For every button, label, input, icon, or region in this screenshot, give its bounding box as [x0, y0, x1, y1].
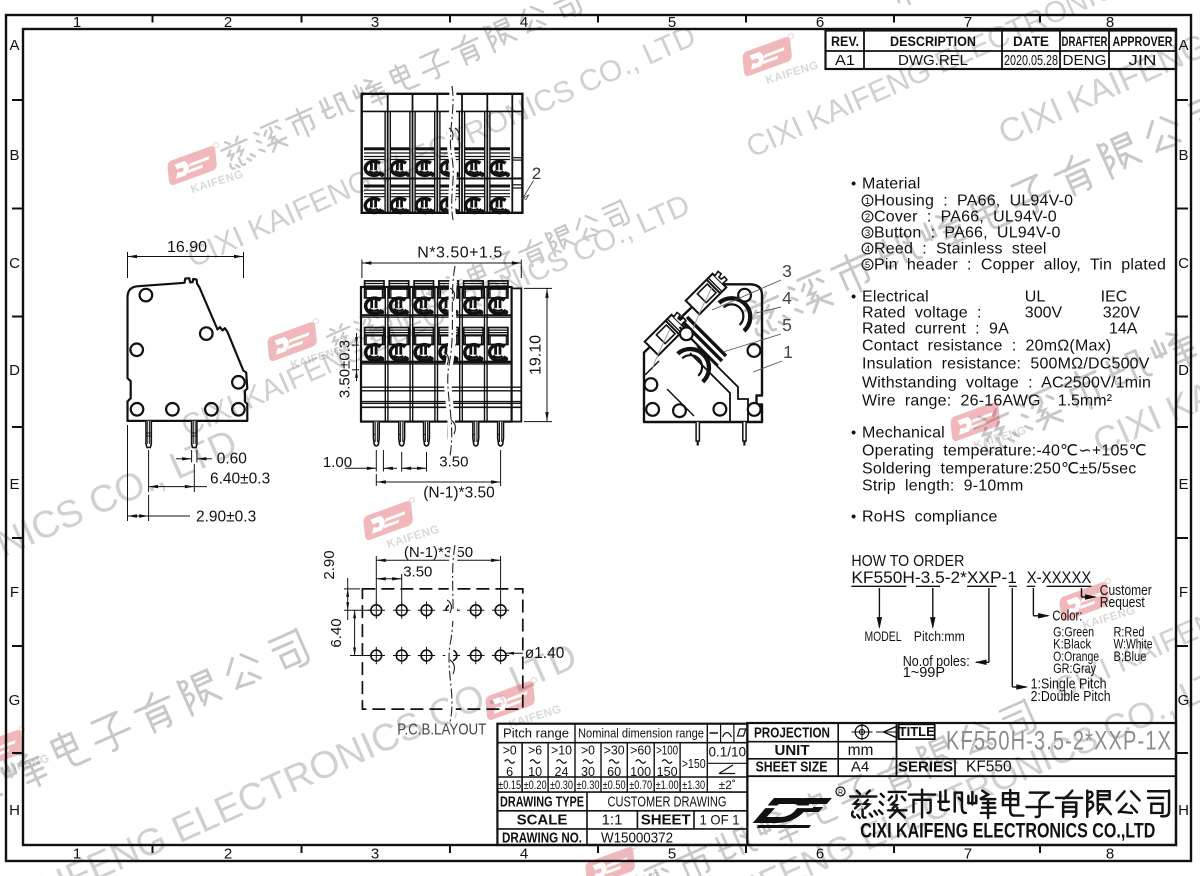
svg-text:Rated current : 9A: Rated current : 9A — [862, 321, 1009, 338]
svg-text:3.50: 3.50 — [439, 454, 468, 471]
svg-text:D: D — [9, 362, 20, 379]
svg-text:3.50: 3.50 — [403, 564, 432, 581]
svg-text:Withstanding voltage : AC2500V: Withstanding voltage : AC2500V/1min — [862, 375, 1151, 392]
svg-text:E: E — [9, 476, 19, 493]
svg-text:PROJECTION: PROJECTION — [754, 725, 830, 742]
svg-text:2.90±0.3: 2.90±0.3 — [196, 509, 256, 526]
svg-text:JIN: JIN — [1129, 52, 1157, 69]
svg-text:7: 7 — [964, 846, 972, 863]
svg-text:5: 5 — [668, 846, 676, 863]
svg-text:•: • — [851, 425, 856, 442]
svg-text:Cover : PA66, UL94V-0: Cover : PA66, UL94V-0 — [874, 209, 1057, 226]
svg-text:Pitch:mm: Pitch:mm — [914, 628, 965, 644]
svg-text:CIXI KAIFENG ELECTRONICS CO.,L: CIXI KAIFENG ELECTRONICS CO.,LTD — [860, 819, 1155, 843]
svg-text:3: 3 — [371, 846, 379, 863]
svg-text:UNIT: UNIT — [775, 742, 810, 759]
svg-text:Button : PA66, UL94V-0: Button : PA66, UL94V-0 — [874, 225, 1061, 242]
svg-text:D: D — [1178, 362, 1189, 379]
svg-text:5: 5 — [668, 14, 676, 31]
svg-text:3.50±0.3: 3.50±0.3 — [337, 340, 354, 398]
svg-text:CIXI KAIFENG ELECTRONICS CO.,: CIXI KAIFENG ELECTRONICS CO., LTD — [0, 635, 583, 876]
svg-text:10: 10 — [528, 765, 542, 779]
svg-text:GR:Gray: GR:Gray — [1053, 660, 1096, 676]
svg-text:1: 1 — [73, 846, 81, 863]
svg-text:19.10: 19.10 — [528, 335, 545, 375]
svg-text:ø1.40: ø1.40 — [525, 645, 565, 662]
svg-text:1.00: 1.00 — [323, 454, 352, 471]
svg-text:X-XXXXX: X-XXXXX — [1027, 568, 1092, 587]
svg-text:•: • — [851, 289, 856, 306]
svg-text:0.60: 0.60 — [217, 451, 248, 468]
svg-text:A: A — [1178, 37, 1188, 54]
svg-text:H: H — [1178, 802, 1189, 819]
svg-text:W15000372: W15000372 — [601, 830, 673, 847]
svg-text:5: 5 — [782, 315, 792, 335]
svg-text:A4: A4 — [851, 758, 869, 775]
svg-text:mm: mm — [848, 742, 874, 759]
svg-text:H: H — [9, 802, 20, 819]
svg-text:2: 2 — [865, 212, 870, 223]
svg-text:Nominal dimension range: Nominal dimension range — [578, 726, 704, 741]
svg-text:6.40: 6.40 — [328, 618, 345, 647]
svg-text:B:Blue: B:Blue — [1114, 648, 1147, 664]
svg-text:2020.05.28: 2020.05.28 — [1004, 52, 1058, 69]
svg-text:MODEL: MODEL — [865, 628, 902, 644]
svg-text:>100: >100 — [656, 744, 678, 758]
svg-text:2.90: 2.90 — [321, 550, 338, 579]
svg-text:>60: >60 — [630, 744, 651, 758]
svg-text:A: A — [9, 37, 19, 54]
svg-text:DRAWING NO.: DRAWING NO. — [502, 830, 582, 847]
svg-text:Soldering temperature:250℃±5/5: Soldering temperature:250℃±5/5sec — [862, 461, 1136, 478]
svg-text:4: 4 — [865, 244, 870, 255]
svg-text:•: • — [851, 509, 856, 526]
svg-text:4: 4 — [520, 14, 528, 31]
svg-text:KF550: KF550 — [966, 758, 1012, 775]
svg-text:2: 2 — [532, 164, 541, 183]
svg-text:F: F — [10, 584, 19, 601]
svg-text:Material: Material — [862, 176, 921, 193]
svg-text:E: E — [1178, 476, 1188, 493]
svg-text:14A: 14A — [1109, 321, 1138, 338]
svg-text:R: R — [838, 789, 843, 796]
svg-text:4: 4 — [782, 288, 792, 308]
svg-text:Mechanical: Mechanical — [862, 425, 945, 442]
svg-text:2: 2 — [224, 846, 232, 863]
svg-text:±1.00: ±1.00 — [656, 780, 679, 792]
svg-text:2:Double Pitch: 2:Double Pitch — [1031, 688, 1111, 705]
svg-text:±1.30: ±1.30 — [682, 780, 705, 792]
svg-text:±0.30: ±0.30 — [550, 780, 573, 792]
svg-text:24: 24 — [555, 765, 569, 779]
svg-text:UL: UL — [1025, 289, 1046, 306]
svg-text:30: 30 — [581, 765, 595, 779]
svg-text:A1: A1 — [835, 52, 855, 69]
svg-text:1.5mm²: 1.5mm² — [1058, 393, 1113, 410]
svg-text:3: 3 — [371, 14, 379, 31]
svg-text:>6: >6 — [528, 744, 542, 758]
svg-text:>0: >0 — [503, 744, 517, 758]
svg-text:KF550H-3.5-2*XXP-1: KF550H-3.5-2*XXP-1 — [851, 568, 1017, 587]
svg-text:IEC: IEC — [1101, 289, 1128, 306]
svg-text:DRAFTER: DRAFTER — [1062, 34, 1108, 49]
svg-text:16.90: 16.90 — [167, 239, 207, 256]
svg-text:>10: >10 — [551, 744, 572, 758]
svg-text:300V: 300V — [1025, 305, 1063, 322]
svg-text:DRAWING TYPE: DRAWING TYPE — [500, 794, 584, 811]
svg-text:7: 7 — [964, 14, 972, 31]
svg-text:6: 6 — [816, 14, 824, 31]
svg-text:REV.: REV. — [831, 34, 859, 49]
svg-text:60: 60 — [607, 765, 621, 779]
svg-text:>0: >0 — [581, 744, 595, 758]
svg-text:±0.30: ±0.30 — [577, 780, 600, 792]
svg-text:1: 1 — [865, 196, 870, 207]
svg-text:SERIES: SERIES — [898, 759, 953, 776]
svg-text:F: F — [1179, 584, 1188, 601]
svg-text:Request: Request — [1100, 595, 1145, 611]
svg-text:±2˚: ±2˚ — [719, 778, 736, 792]
svg-text:Electrical: Electrical — [862, 289, 929, 306]
svg-text:±0.20: ±0.20 — [524, 780, 547, 792]
svg-text:Insulation resistance: 500MΩ/D: Insulation resistance: 500MΩ/DC500V — [862, 356, 1150, 373]
svg-text:±0.70: ±0.70 — [629, 780, 652, 792]
svg-text:Operating temperature:-40℃∽+10: Operating temperature:-40℃∽+105℃ — [862, 443, 1147, 460]
svg-text:DENG: DENG — [1063, 52, 1107, 69]
svg-text:0.1/10: 0.1/10 — [709, 745, 747, 760]
svg-text:1: 1 — [73, 14, 81, 31]
svg-text:CUSTOMER DRAWING: CUSTOMER DRAWING — [608, 794, 727, 811]
svg-text:G: G — [1178, 692, 1190, 709]
svg-text:150: 150 — [657, 765, 678, 779]
svg-text:RoHS compliance: RoHS compliance — [862, 509, 998, 526]
svg-text:(N-1)*3.50: (N-1)*3.50 — [404, 544, 473, 561]
svg-text:(N-1)*3.50: (N-1)*3.50 — [423, 485, 495, 502]
svg-text:Rated voltage :: Rated voltage : — [862, 305, 982, 322]
svg-text:DATE: DATE — [1013, 34, 1049, 49]
svg-text:±0.50: ±0.50 — [603, 780, 626, 792]
svg-text:Pin header : Copper alloy, Tin: Pin header : Copper alloy, Tin plated — [874, 257, 1166, 274]
svg-text:1: 1 — [783, 342, 793, 362]
svg-text:±0.15: ±0.15 — [498, 780, 521, 792]
svg-text:2: 2 — [224, 14, 232, 31]
svg-text:1~99P: 1~99P — [903, 665, 945, 681]
svg-text:>30: >30 — [604, 744, 625, 758]
svg-text:1 OF 1: 1 OF 1 — [700, 811, 740, 827]
svg-text:C: C — [9, 255, 20, 272]
svg-text:1:1: 1:1 — [602, 812, 623, 829]
svg-text:C: C — [1178, 255, 1189, 272]
svg-text:SHEET: SHEET — [641, 812, 691, 829]
svg-text:100: 100 — [630, 765, 651, 779]
svg-text:B: B — [1178, 147, 1188, 164]
svg-text:Wire range: 26-16AWG: Wire range: 26-16AWG — [862, 393, 1041, 410]
svg-text:3: 3 — [865, 228, 870, 239]
svg-text:DWG.REL: DWG.REL — [898, 52, 968, 69]
svg-text:•: • — [851, 176, 856, 193]
svg-text:P.C.B.LAYOUT: P.C.B.LAYOUT — [397, 722, 486, 739]
svg-text:>150: >150 — [682, 757, 706, 771]
svg-text:SHEET SIZE: SHEET SIZE — [756, 758, 828, 775]
svg-text:KF550H-3.5-2*XXP-1X: KF550H-3.5-2*XXP-1X — [946, 726, 1172, 756]
svg-text:Pitch range: Pitch range — [503, 726, 569, 741]
svg-text:5: 5 — [865, 260, 870, 271]
svg-text:320V: 320V — [1103, 305, 1141, 322]
svg-text:8: 8 — [1106, 14, 1114, 31]
svg-text:8: 8 — [1106, 846, 1114, 863]
svg-text:B: B — [9, 147, 19, 164]
svg-text:N*3.50+1.5: N*3.50+1.5 — [417, 245, 503, 262]
svg-text:TITLE: TITLE — [899, 724, 935, 739]
svg-text:4: 4 — [520, 846, 528, 863]
svg-text:Color:: Color: — [1052, 608, 1082, 625]
svg-text:6: 6 — [506, 765, 513, 779]
svg-text:6.40±0.3: 6.40±0.3 — [210, 471, 270, 488]
svg-text:APPROVER: APPROVER — [1113, 34, 1173, 49]
svg-text:G: G — [9, 692, 21, 709]
svg-text:DESCRIPTION: DESCRIPTION — [890, 34, 976, 49]
svg-text:SCALE: SCALE — [517, 812, 568, 829]
svg-text:Strip length: 9-10mm: Strip length: 9-10mm — [862, 478, 1024, 495]
svg-text:Reed : Stainless steel: Reed : Stainless steel — [874, 241, 1047, 258]
svg-text:6: 6 — [816, 846, 824, 863]
svg-text:Housing : PA66, UL94V-0: Housing : PA66, UL94V-0 — [874, 193, 1073, 210]
svg-text:3: 3 — [782, 261, 792, 281]
svg-text:Contact resistance : 20mΩ(Max): Contact resistance : 20mΩ(Max) — [862, 338, 1111, 355]
